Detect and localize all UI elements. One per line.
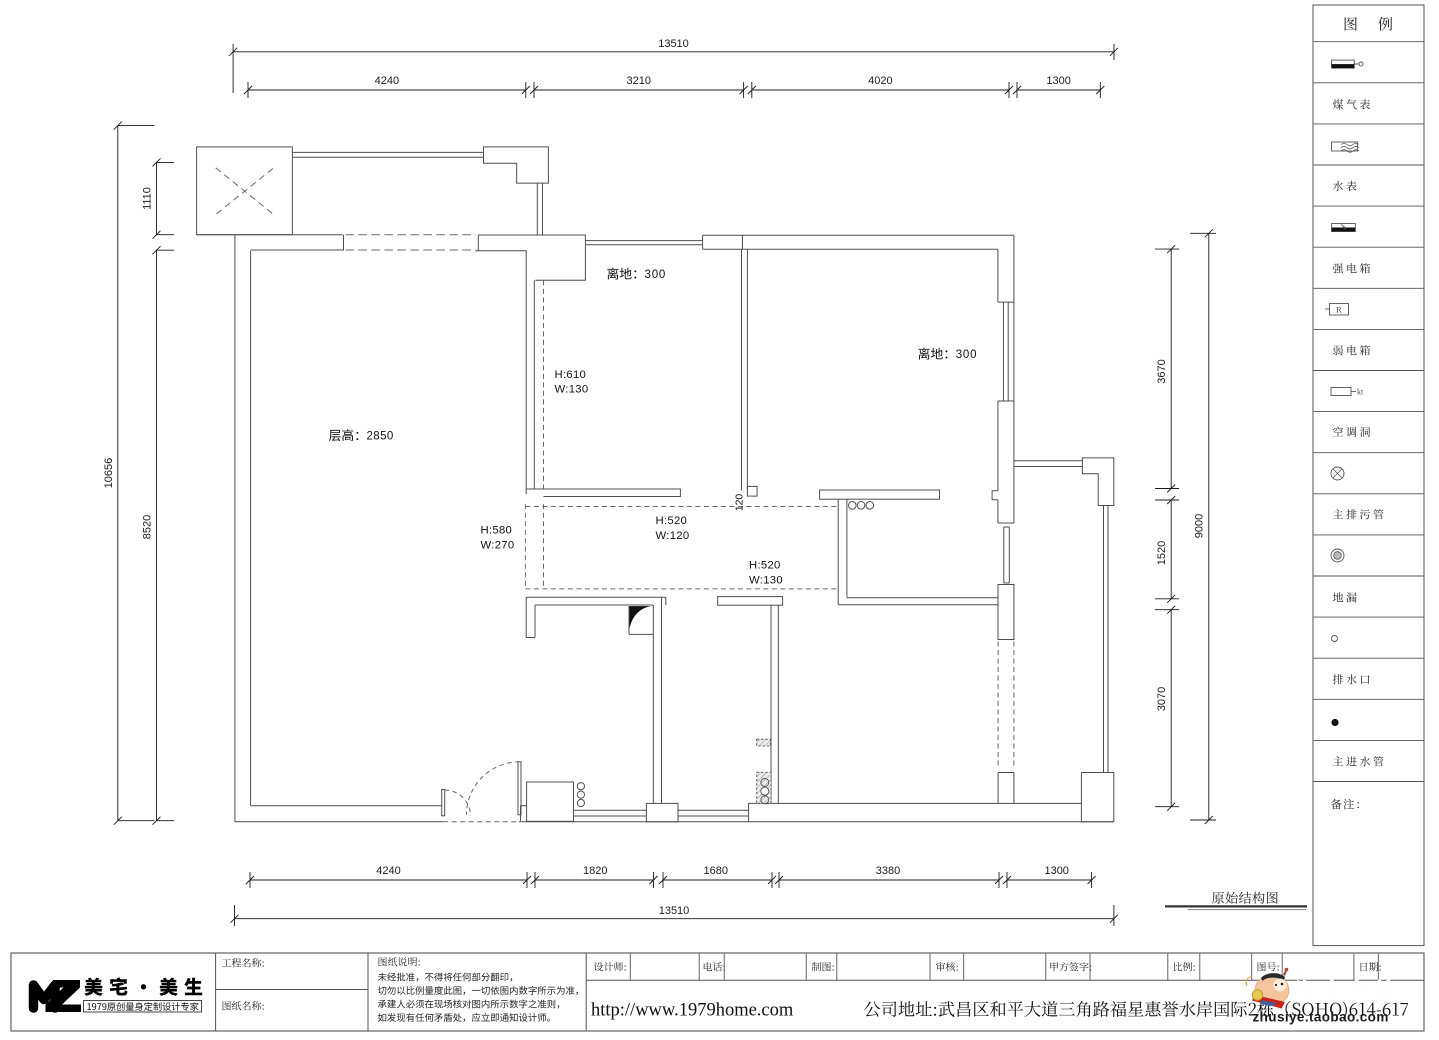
svg-text:13510: 13510: [658, 38, 689, 50]
svg-text:3670: 3670: [1156, 359, 1168, 383]
svg-text:H:580: H:580: [481, 525, 513, 537]
svg-text:H:610: H:610: [555, 369, 587, 381]
svg-text:10656: 10656: [103, 458, 115, 489]
svg-text:1680: 1680: [704, 865, 728, 877]
svg-text:1300: 1300: [1046, 75, 1070, 87]
svg-text:2850: 2850: [367, 431, 394, 443]
svg-text:4240: 4240: [376, 865, 400, 877]
svg-text:1300: 1300: [1044, 865, 1068, 877]
svg-text:4240: 4240: [375, 75, 399, 87]
svg-text:1110: 1110: [142, 187, 154, 210]
svg-text:W:120: W:120: [656, 530, 690, 542]
svg-text:1820: 1820: [583, 865, 607, 877]
svg-text:4020: 4020: [868, 75, 892, 87]
svg-text:H:520: H:520: [656, 515, 688, 527]
svg-text:R: R: [1336, 305, 1342, 315]
svg-text:http://www.1979home.com: http://www.1979home.com: [591, 1001, 794, 1021]
svg-text:13510: 13510: [659, 905, 690, 917]
svg-text:300: 300: [645, 269, 667, 281]
svg-text:9000: 9000: [1194, 514, 1206, 538]
svg-text:1520: 1520: [1156, 541, 1168, 565]
svg-text:3380: 3380: [876, 865, 900, 877]
svg-text:W:270: W:270: [481, 540, 515, 552]
svg-text:kt: kt: [1357, 388, 1364, 397]
svg-text:W:130: W:130: [749, 575, 783, 587]
svg-text:H:520: H:520: [749, 560, 781, 572]
svg-text:120: 120: [734, 494, 746, 512]
svg-text:zhusiye.taobao.com: zhusiye.taobao.com: [1253, 1010, 1389, 1025]
svg-text:3210: 3210: [627, 75, 651, 87]
svg-text:3070: 3070: [1156, 687, 1168, 711]
svg-text:8520: 8520: [142, 515, 154, 539]
svg-text:300: 300: [956, 349, 978, 361]
svg-text:W:130: W:130: [555, 384, 589, 396]
